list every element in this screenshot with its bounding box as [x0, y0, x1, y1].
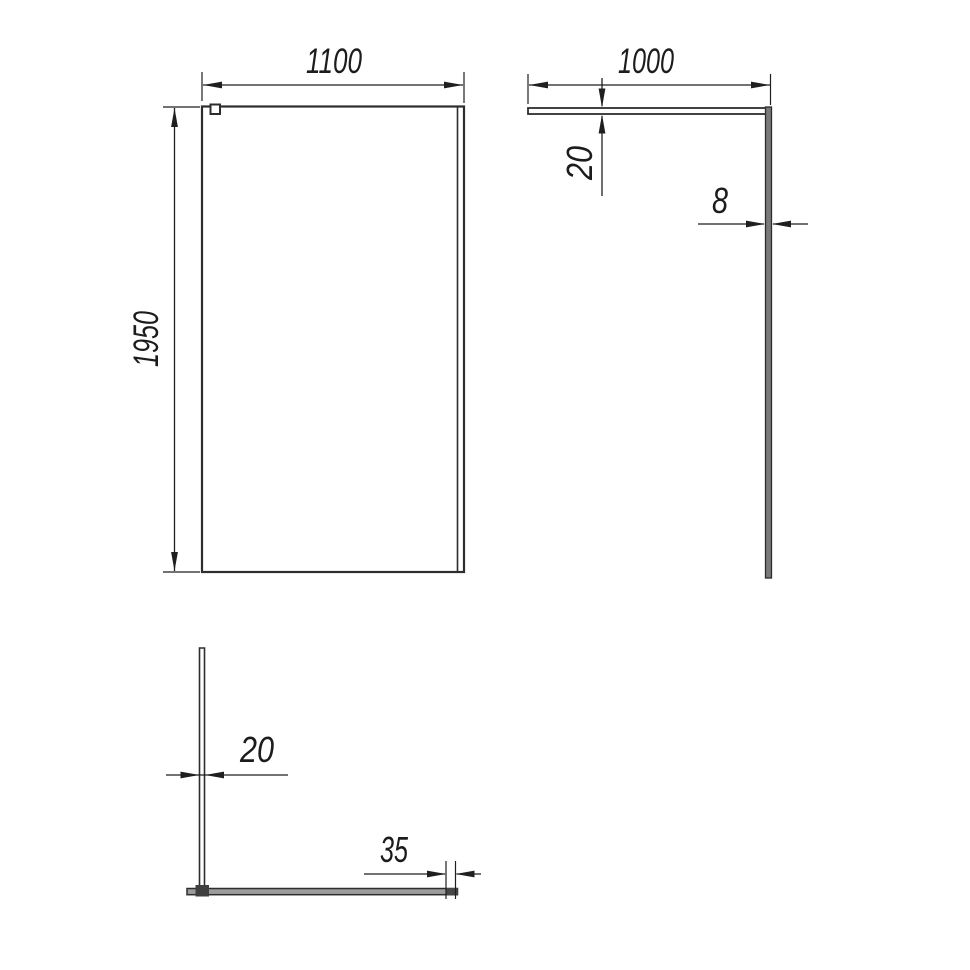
- arm-connector: [196, 885, 210, 897]
- dim-label-bar-thickness: 20: [559, 146, 600, 181]
- shower-screen-drawing: 1100 1950 1000: [0, 0, 970, 970]
- dim-front-height: 1950: [127, 107, 200, 572]
- dim-arrow: [529, 82, 548, 89]
- dim-arrow: [427, 871, 446, 878]
- dim-arrow: [599, 115, 606, 134]
- glass-edge: [766, 107, 772, 578]
- technical-drawing-canvas: 1100 1950 1000: [0, 0, 970, 970]
- front-view: 1100 1950: [127, 42, 464, 572]
- dim-label-wall-profile: 35: [380, 829, 409, 870]
- dim-arrow: [751, 82, 770, 89]
- dim-label-side-length: 1000: [618, 42, 674, 81]
- dim-label-front-width: 1100: [306, 42, 362, 81]
- support-arm-outline: [200, 648, 205, 888]
- dim-side-glass-thickness: 8: [698, 180, 808, 227]
- dim-arrow: [203, 82, 222, 89]
- glass-panel-outline: [202, 107, 464, 573]
- glass-panel-top: [187, 889, 458, 895]
- dim-arrow: [171, 552, 178, 571]
- dim-arrow: [746, 221, 765, 228]
- dim-plan-arm-width: 20: [166, 729, 288, 778]
- dim-front-width: 1100: [202, 42, 464, 103]
- dim-label-arm-width: 20: [239, 729, 274, 770]
- dim-arrow: [772, 221, 791, 228]
- dim-arrow: [205, 772, 224, 779]
- dim-arrow: [456, 871, 475, 878]
- dim-arrow: [181, 772, 200, 779]
- dim-label-glass-thickness: 8: [712, 180, 728, 221]
- dim-arrow: [599, 89, 606, 108]
- dim-label-front-height: 1950: [127, 311, 166, 367]
- dim-side-bar-thickness: 20: [559, 78, 605, 196]
- dim-arrow: [171, 108, 178, 127]
- side-view: 1000 20 8: [528, 42, 808, 578]
- dim-side-length: 1000: [528, 42, 771, 105]
- mounting-bracket: [211, 105, 221, 115]
- plan-view: 20 35: [166, 648, 481, 899]
- support-bar: [528, 108, 766, 114]
- dim-arrow: [444, 82, 463, 89]
